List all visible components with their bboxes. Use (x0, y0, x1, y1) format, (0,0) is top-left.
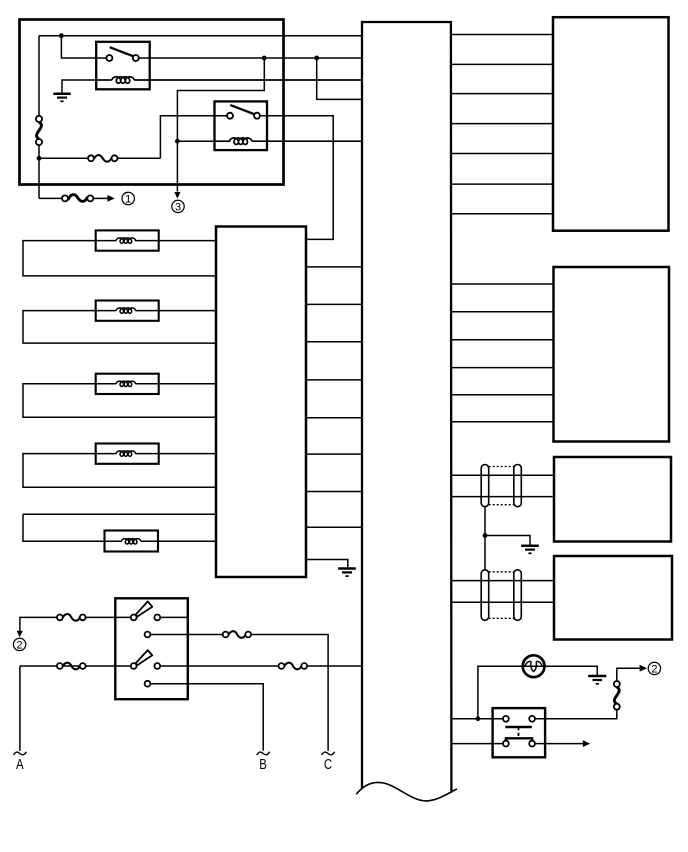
svg-text:2: 2 (651, 663, 657, 675)
svg-text:3: 3 (175, 201, 181, 213)
svg-text:C: C (324, 756, 332, 773)
svg-text:2: 2 (17, 639, 23, 651)
svg-text:B: B (259, 756, 267, 773)
svg-text:1: 1 (125, 193, 131, 205)
svg-text:A: A (16, 756, 24, 773)
